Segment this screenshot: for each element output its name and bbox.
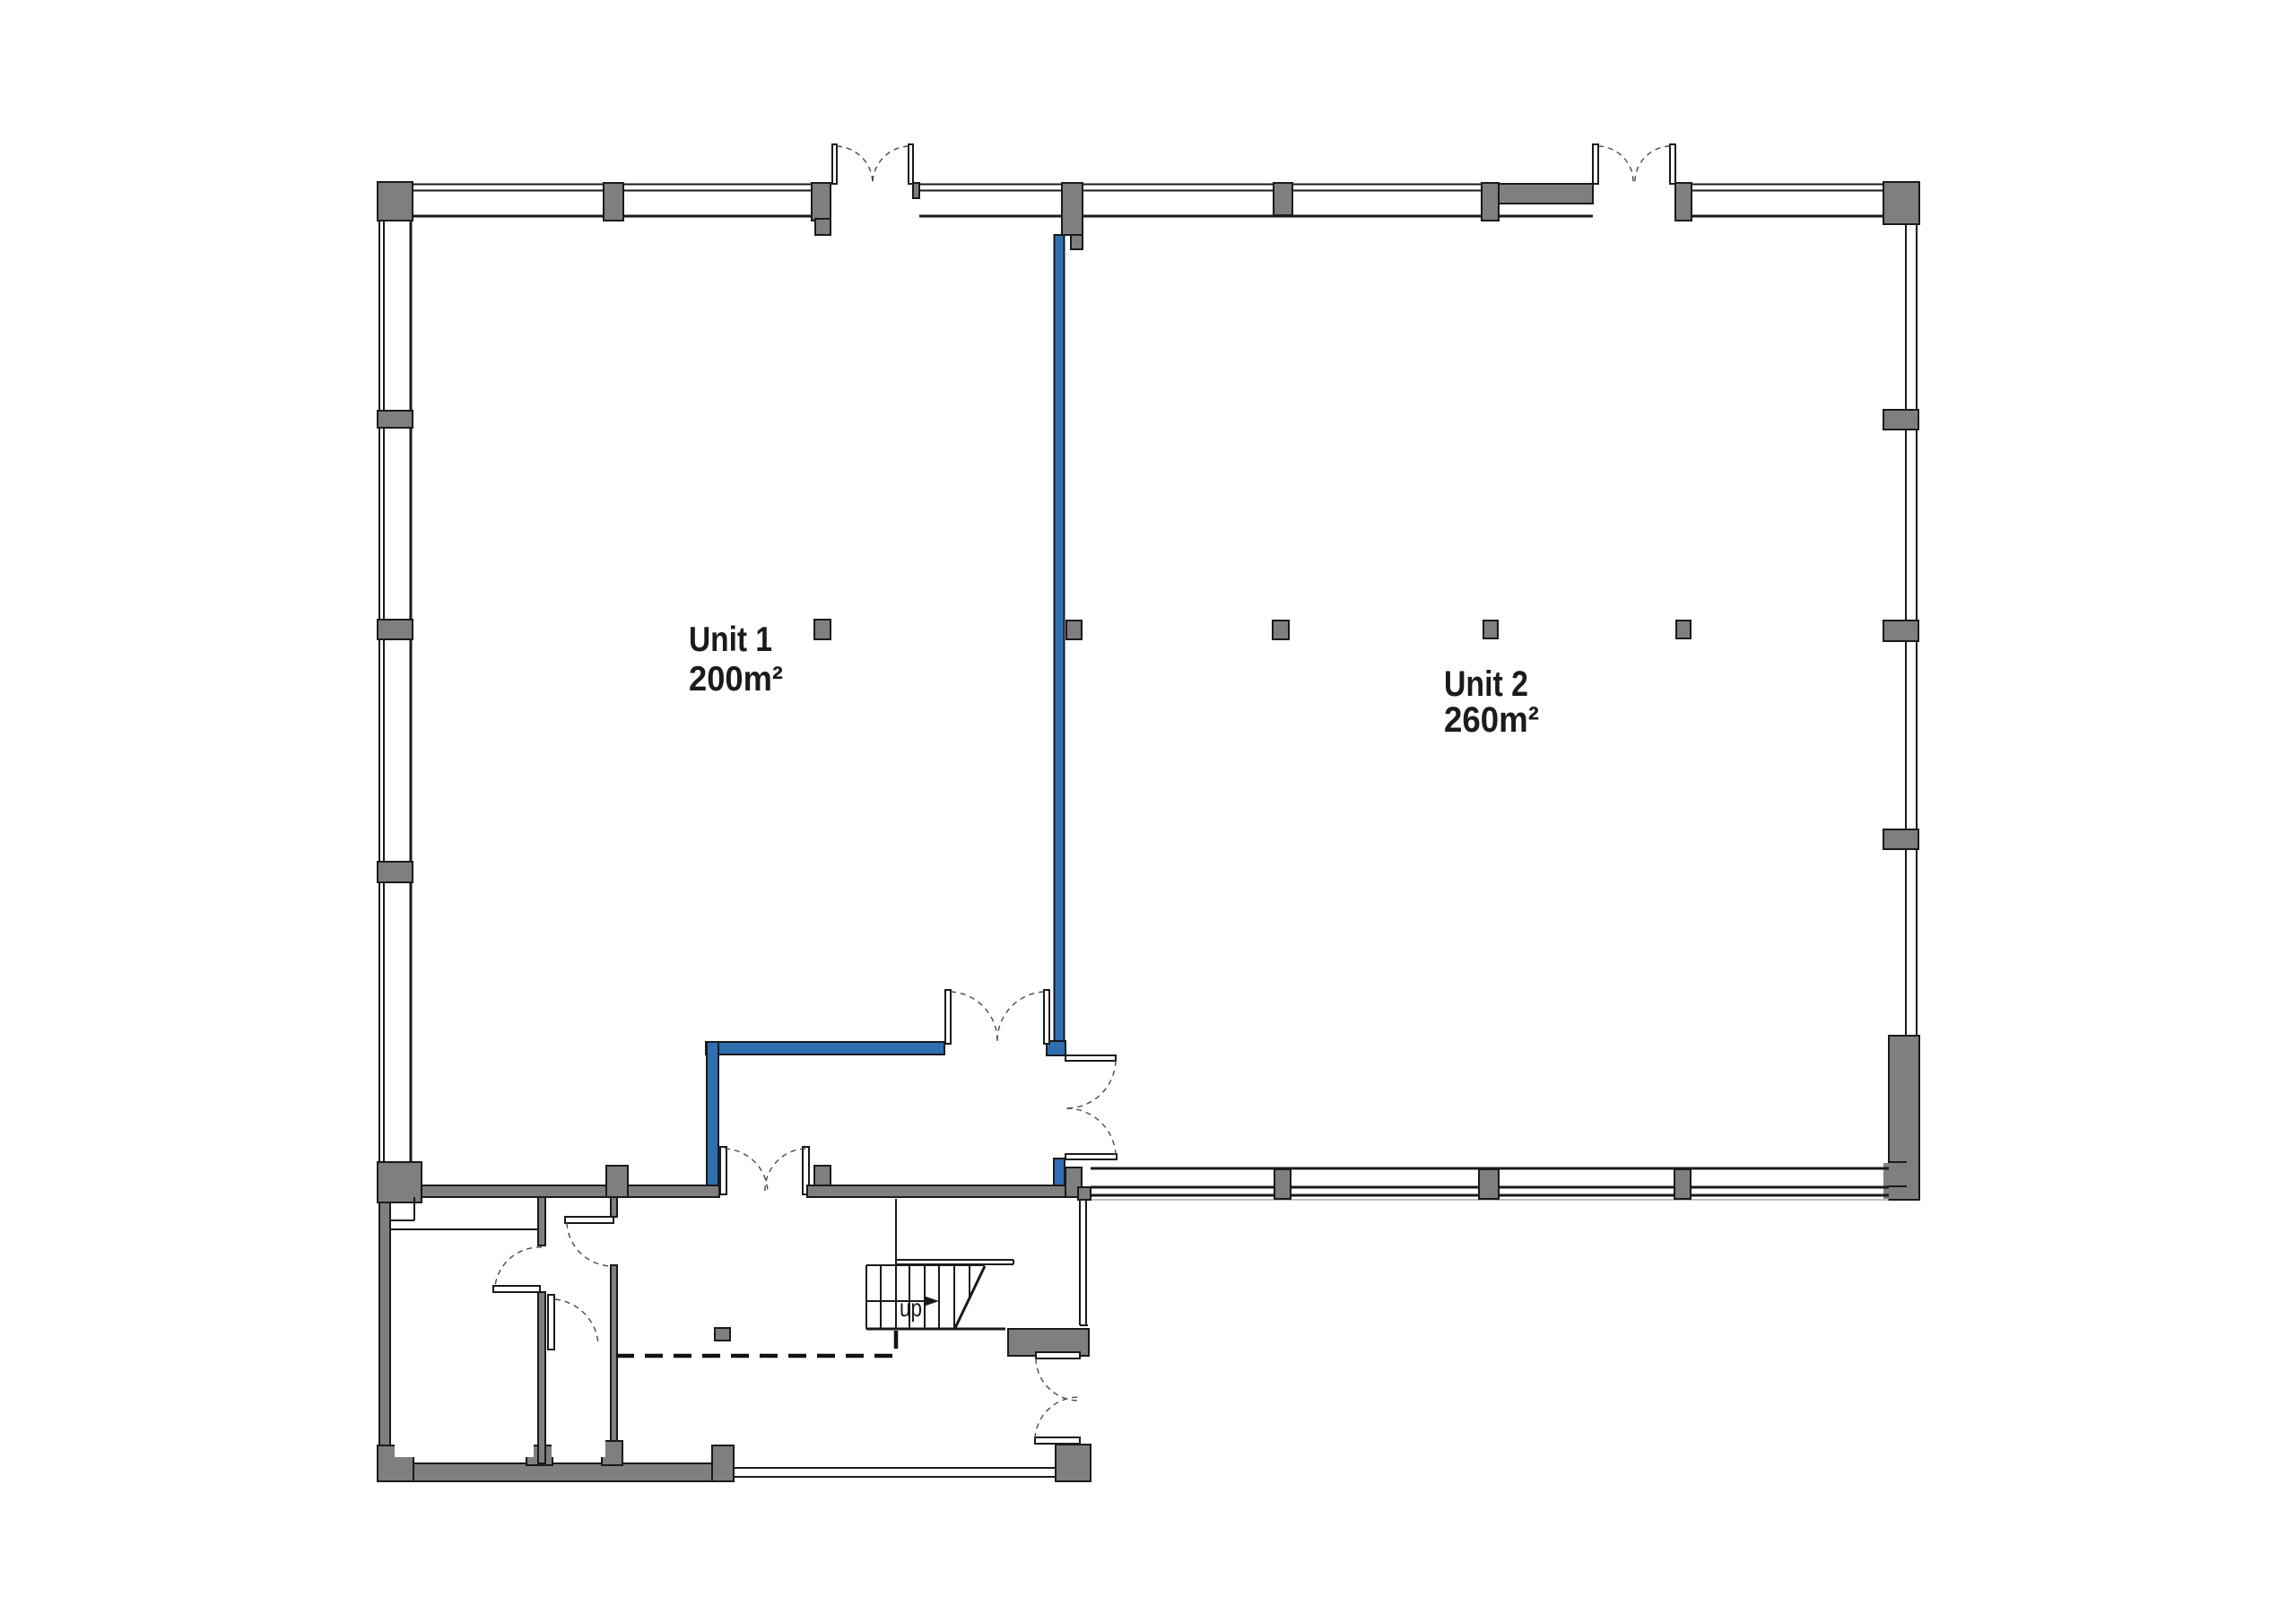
svg-text:260m²: 260m² — [1444, 700, 1539, 740]
svg-text:200m²: 200m² — [689, 660, 783, 699]
svg-text:Unit 1: Unit 1 — [689, 621, 772, 659]
svg-text:up: up — [900, 1294, 922, 1322]
svg-text:Unit 2: Unit 2 — [1444, 664, 1528, 704]
